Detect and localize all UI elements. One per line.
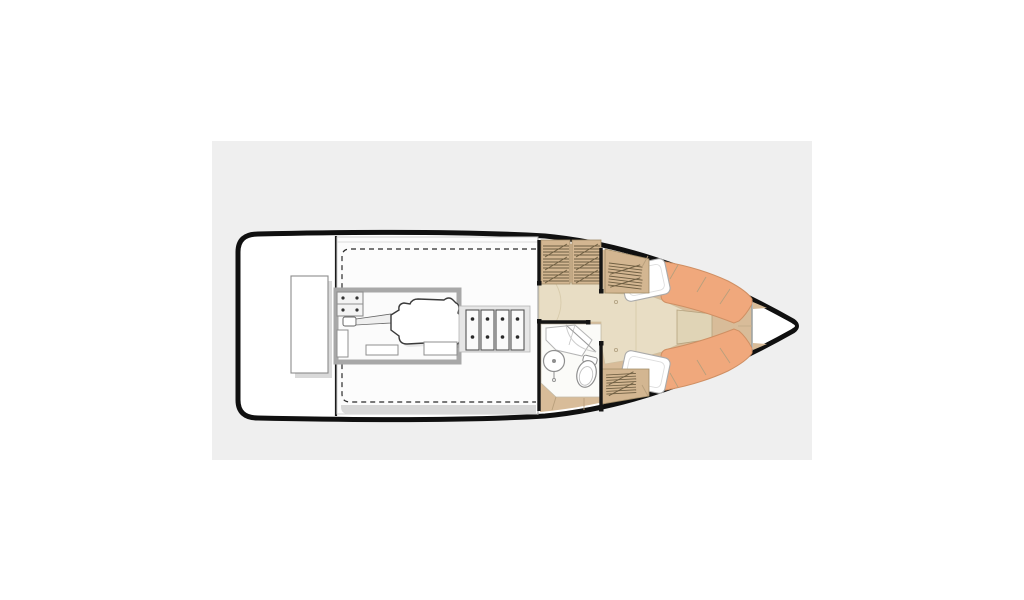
deck-plan-canvas bbox=[0, 0, 1024, 600]
cockpit-gunwale-band bbox=[341, 405, 536, 414]
engine-bearer-left bbox=[366, 345, 398, 355]
engine-room bbox=[336, 290, 463, 362]
bench-top bbox=[291, 276, 328, 373]
transom-bench bbox=[291, 276, 332, 378]
shaft-coupling bbox=[343, 317, 356, 326]
battery-bank bbox=[459, 306, 530, 352]
stern-gland-box bbox=[337, 330, 348, 357]
page bbox=[0, 0, 1024, 600]
engine-block bbox=[391, 298, 460, 349]
engine-bearer-right bbox=[424, 342, 457, 355]
